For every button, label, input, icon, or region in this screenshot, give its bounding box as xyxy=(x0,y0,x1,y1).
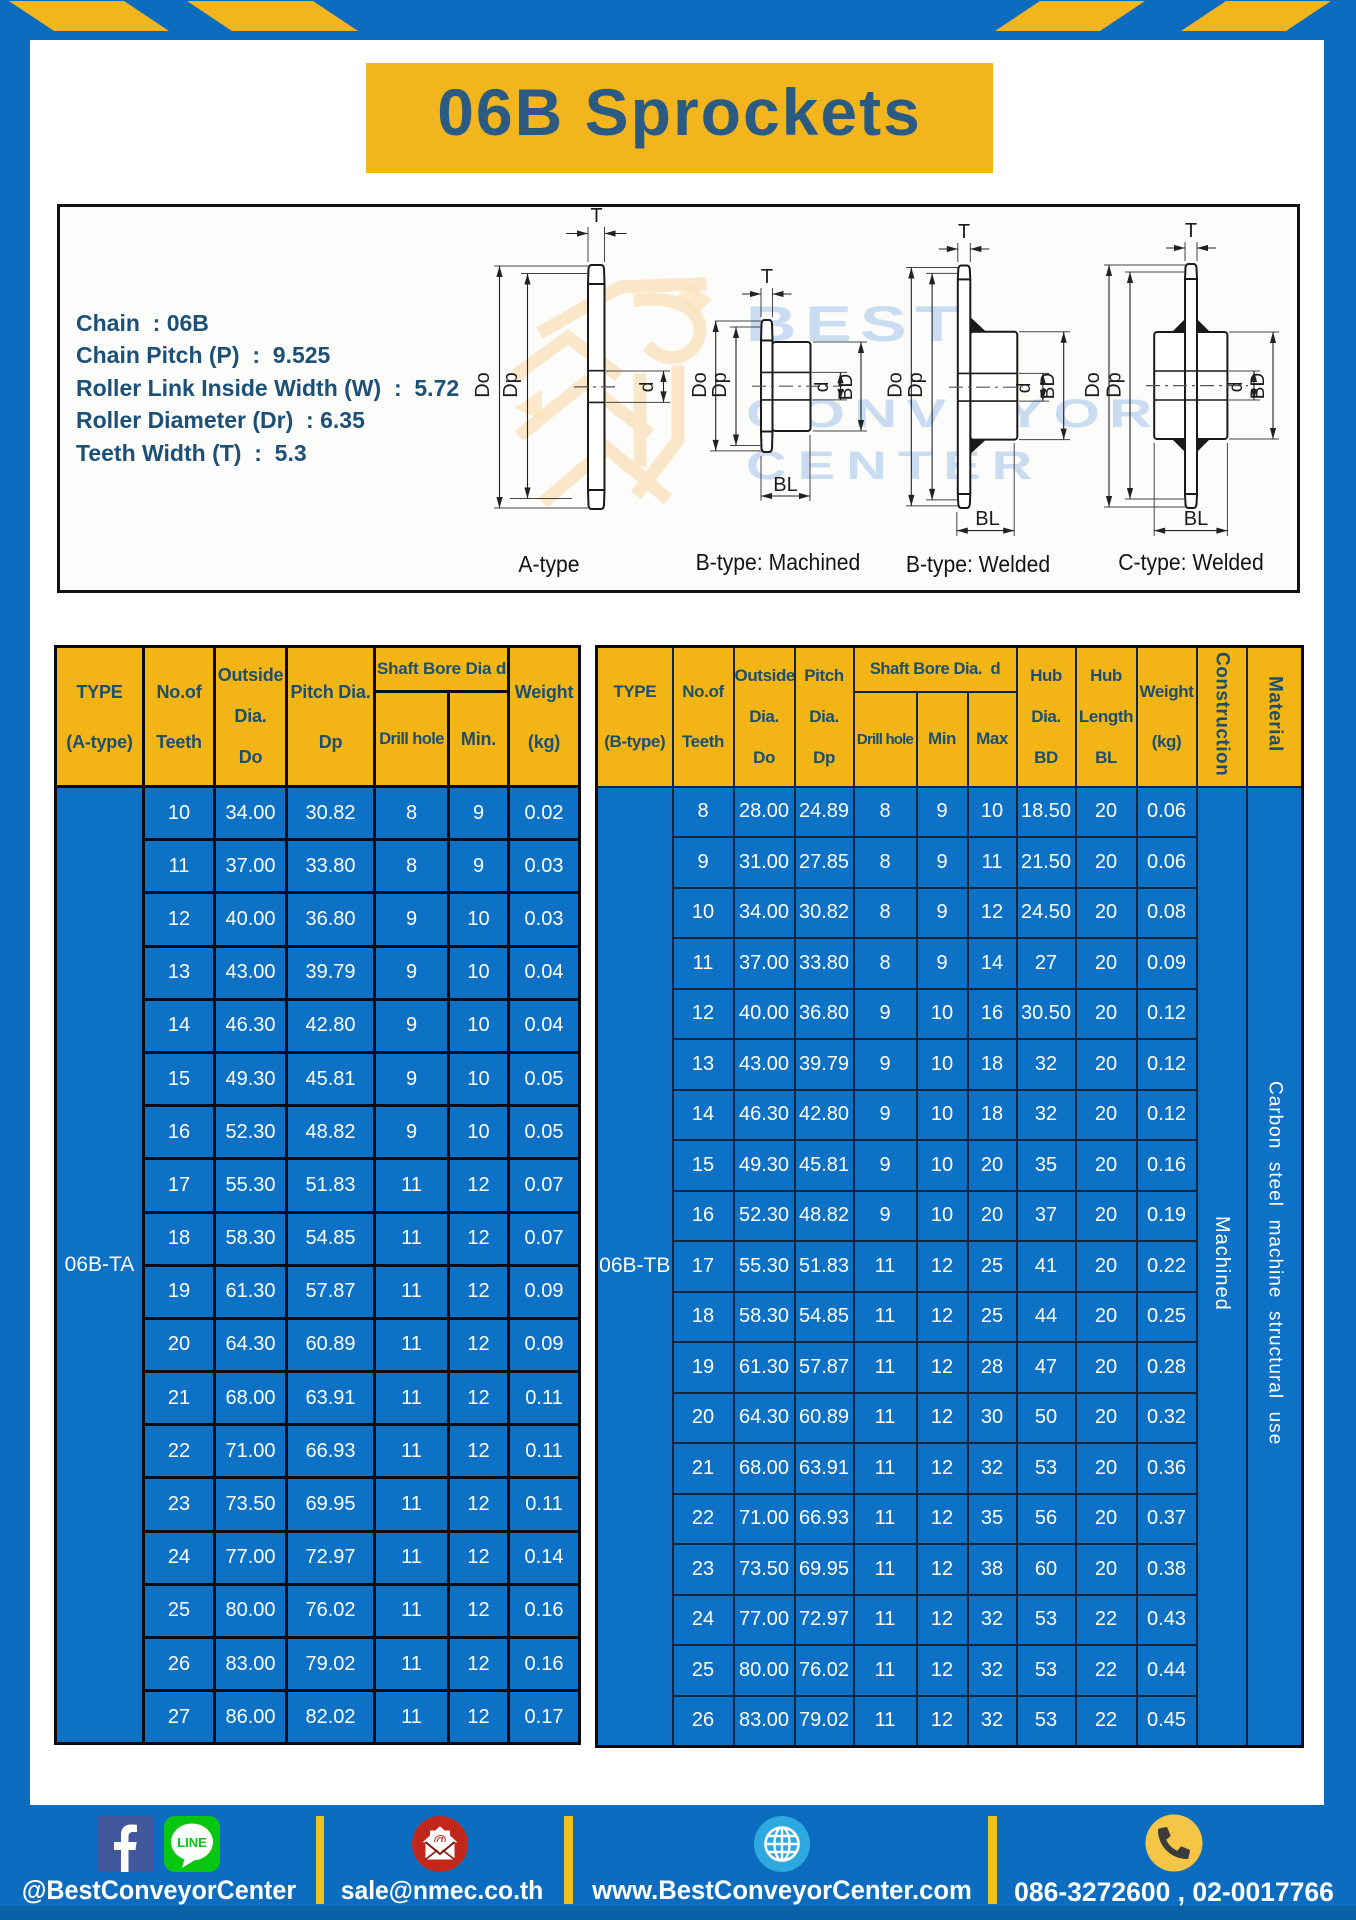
svg-text:d: d xyxy=(637,382,658,393)
svg-text:T: T xyxy=(590,205,602,227)
svg-text:Dp: Dp xyxy=(500,372,522,398)
svg-text:BL: BL xyxy=(773,474,797,496)
svg-text:d: d xyxy=(1226,382,1247,393)
svg-text:d: d xyxy=(812,382,833,393)
svg-text:Dp: Dp xyxy=(1104,372,1126,398)
svg-text:BD: BD xyxy=(1248,373,1269,399)
svg-text:BD: BD xyxy=(1038,373,1059,399)
svg-text:d: d xyxy=(1014,383,1035,394)
svg-text:Do: Do xyxy=(472,372,494,398)
svg-text:T: T xyxy=(761,266,773,288)
svg-text:BD: BD xyxy=(836,374,857,400)
svg-text:Do: Do xyxy=(689,372,711,398)
svg-text:BL: BL xyxy=(975,508,999,530)
svg-text:Dp: Dp xyxy=(709,372,731,398)
svg-text:T: T xyxy=(958,221,970,243)
svg-text:T: T xyxy=(1185,220,1197,242)
svg-text:BL: BL xyxy=(1184,508,1208,530)
svg-text:Do: Do xyxy=(885,372,907,398)
svg-text:Dp: Dp xyxy=(905,372,927,398)
svg-text:LINE: LINE xyxy=(177,1835,207,1850)
svg-text:Do: Do xyxy=(1082,372,1104,398)
